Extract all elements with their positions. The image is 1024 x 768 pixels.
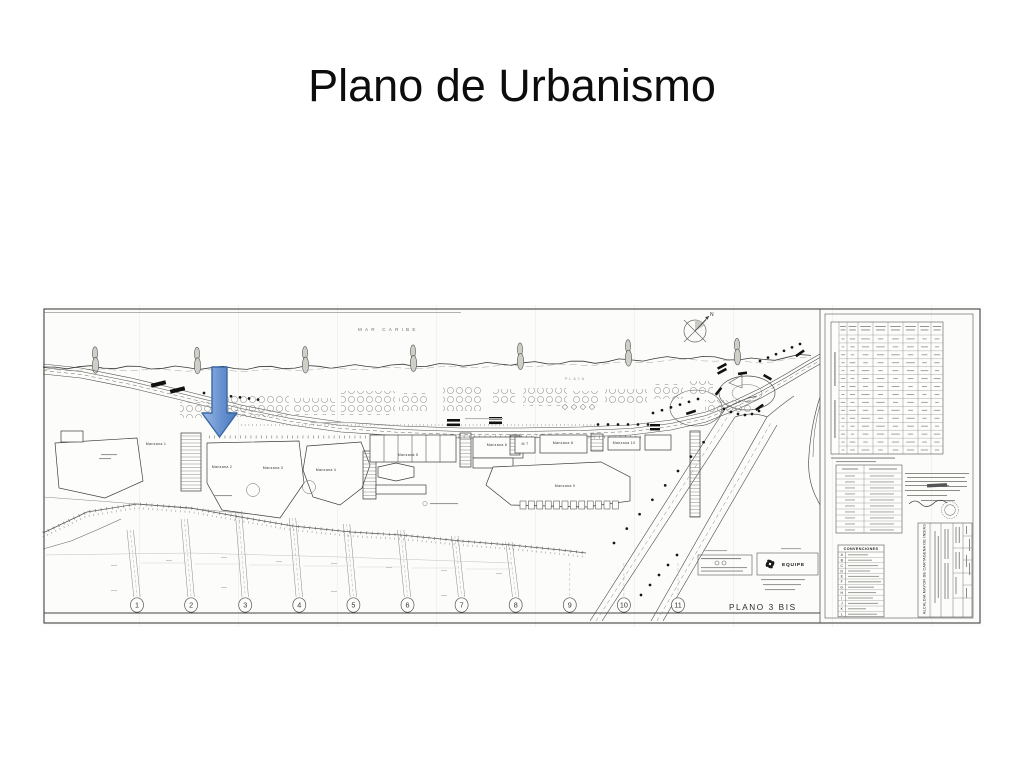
beach-label: PLAYA [565, 377, 586, 381]
legend-box: CONVENCIONESABCDEFGHIJKL [838, 545, 884, 617]
section-number: 6 [406, 601, 410, 610]
block-label: Manzana 9 [555, 484, 575, 488]
equipe-logo-icon [765, 559, 775, 569]
legend-letter: L [841, 613, 843, 617]
equipe-box: EQUIPE [757, 553, 818, 575]
hatched-boundary [43, 504, 586, 563]
block-label: Manzana 2 [212, 465, 232, 469]
block-label: Manzana 4 [316, 468, 336, 472]
block-label: M 7 [522, 442, 529, 446]
section-number: 8 [514, 601, 518, 610]
equipe-label: EQUIPE [782, 562, 805, 568]
trees [180, 381, 753, 418]
section-number: 3 [243, 601, 247, 610]
title-block-label: ALCALDIA MAYOR DE CARTAGENA DE INDIAS [923, 524, 927, 614]
section-number: 2 [189, 601, 193, 610]
section-number: 4 [297, 601, 301, 610]
block-label: Manzana 1 [146, 442, 166, 446]
block-label: Manzana 5 [398, 453, 418, 457]
data-panel: CONVENCIONESABCDEFGHIJKL ALCALDIA MAYOR … [825, 314, 973, 618]
legend-letter: I [841, 596, 842, 600]
title-block: ALCALDIA MAYOR DE CARTAGENA DE INDIAS [918, 523, 972, 617]
section-number: 5 [351, 601, 355, 610]
block-label: Manzana 3 [263, 466, 283, 470]
road-network [43, 354, 820, 621]
approval-note [905, 473, 969, 507]
urban-plan-drawing: MAR CARIBE PLAYA N [41, 305, 984, 627]
block-label: Manzana 8 [553, 441, 573, 445]
section-numbers: 1234567891011 [131, 598, 685, 612]
street-grid [111, 511, 678, 597]
legend-title: CONVENCIONES [844, 547, 879, 551]
legend-letter: G [840, 586, 843, 590]
section-number: 7 [460, 601, 464, 610]
zoning-table [831, 322, 943, 454]
area-summary-table [836, 465, 902, 533]
plan-number: PLANO 3 BIS [729, 603, 797, 612]
section-number: 11 [674, 601, 681, 610]
block-label: Manzana 10 [613, 441, 636, 445]
legend-letter: F [841, 580, 843, 584]
stamp-icon [942, 502, 959, 519]
coastline: MAR CARIBE PLAYA [43, 327, 811, 381]
section-number: 10 [620, 601, 628, 610]
plan-sheet: MAR CARIBE PLAYA N [41, 305, 984, 627]
compass-icon: N [684, 312, 714, 342]
section-number: 9 [568, 601, 572, 610]
north-label: N [710, 312, 714, 318]
presentation-slide: Plano de Urbanismo MAR CARIBE [0, 0, 1024, 768]
slide-title: Plano de Urbanismo [0, 60, 1024, 112]
sea-label: MAR CARIBE [358, 327, 419, 332]
section-number: 1 [135, 601, 139, 610]
annotation-arrow-icon [197, 362, 243, 442]
block-label: Manzana 6 [487, 443, 507, 447]
legend-letter: J [841, 602, 843, 606]
